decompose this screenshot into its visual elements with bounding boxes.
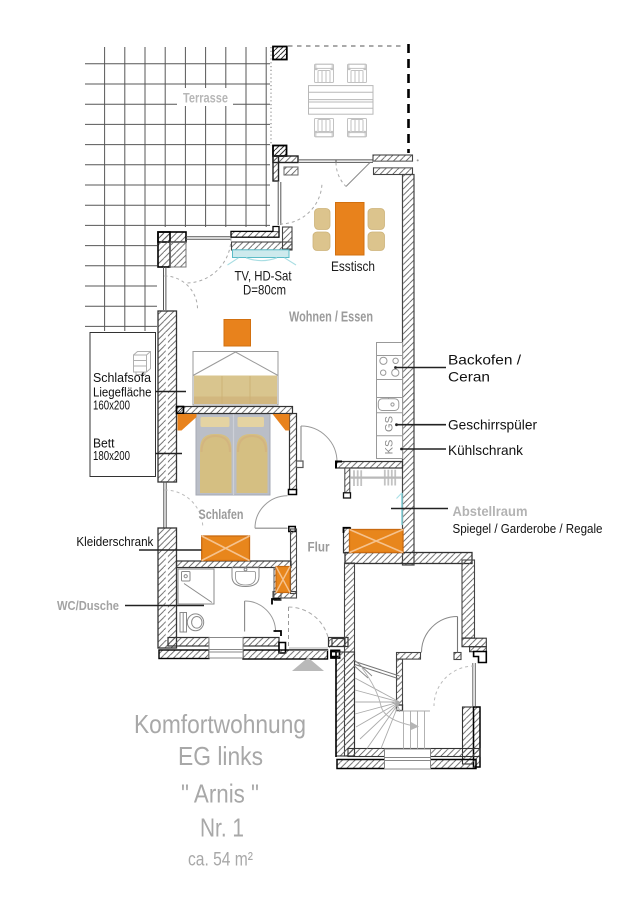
svg-text:Schlafsofa: Schlafsofa — [93, 370, 152, 385]
svg-text:Schlafen: Schlafen — [199, 507, 244, 522]
svg-text:Kleiderschrank: Kleiderschrank — [76, 534, 153, 549]
svg-text:Geschirrspüler: Geschirrspüler — [448, 417, 537, 433]
svg-text:Wohnen / Essen: Wohnen / Essen — [289, 310, 373, 326]
svg-text:KS: KS — [383, 440, 395, 455]
svg-text:Kühlschrank: Kühlschrank — [448, 442, 524, 458]
svg-text:EG links: EG links — [178, 741, 263, 771]
svg-text:GS: GS — [383, 416, 395, 432]
svg-text:160x200: 160x200 — [93, 398, 130, 413]
svg-text:Terrasse: Terrasse — [183, 91, 228, 106]
svg-text:Abstellraum: Abstellraum — [453, 504, 528, 519]
svg-text:WC/Dusche: WC/Dusche — [57, 598, 119, 613]
svg-text:Backofen /: Backofen / — [448, 352, 521, 368]
svg-text:" Arnis ": " Arnis " — [181, 779, 259, 809]
svg-text:Ceran: Ceran — [448, 369, 490, 385]
svg-text:Flur: Flur — [308, 540, 331, 555]
svg-text:ca. 54 m²: ca. 54 m² — [188, 850, 253, 871]
svg-text:Nr. 1: Nr. 1 — [200, 813, 244, 843]
svg-text:Spiegel / Garderobe / Regale: Spiegel / Garderobe / Regale — [453, 521, 603, 536]
svg-text:Esstisch: Esstisch — [331, 258, 375, 274]
svg-text:D=80cm: D=80cm — [243, 282, 286, 298]
svg-text:180x200: 180x200 — [93, 448, 130, 463]
svg-text:Komfortwohnung: Komfortwohnung — [134, 709, 306, 739]
